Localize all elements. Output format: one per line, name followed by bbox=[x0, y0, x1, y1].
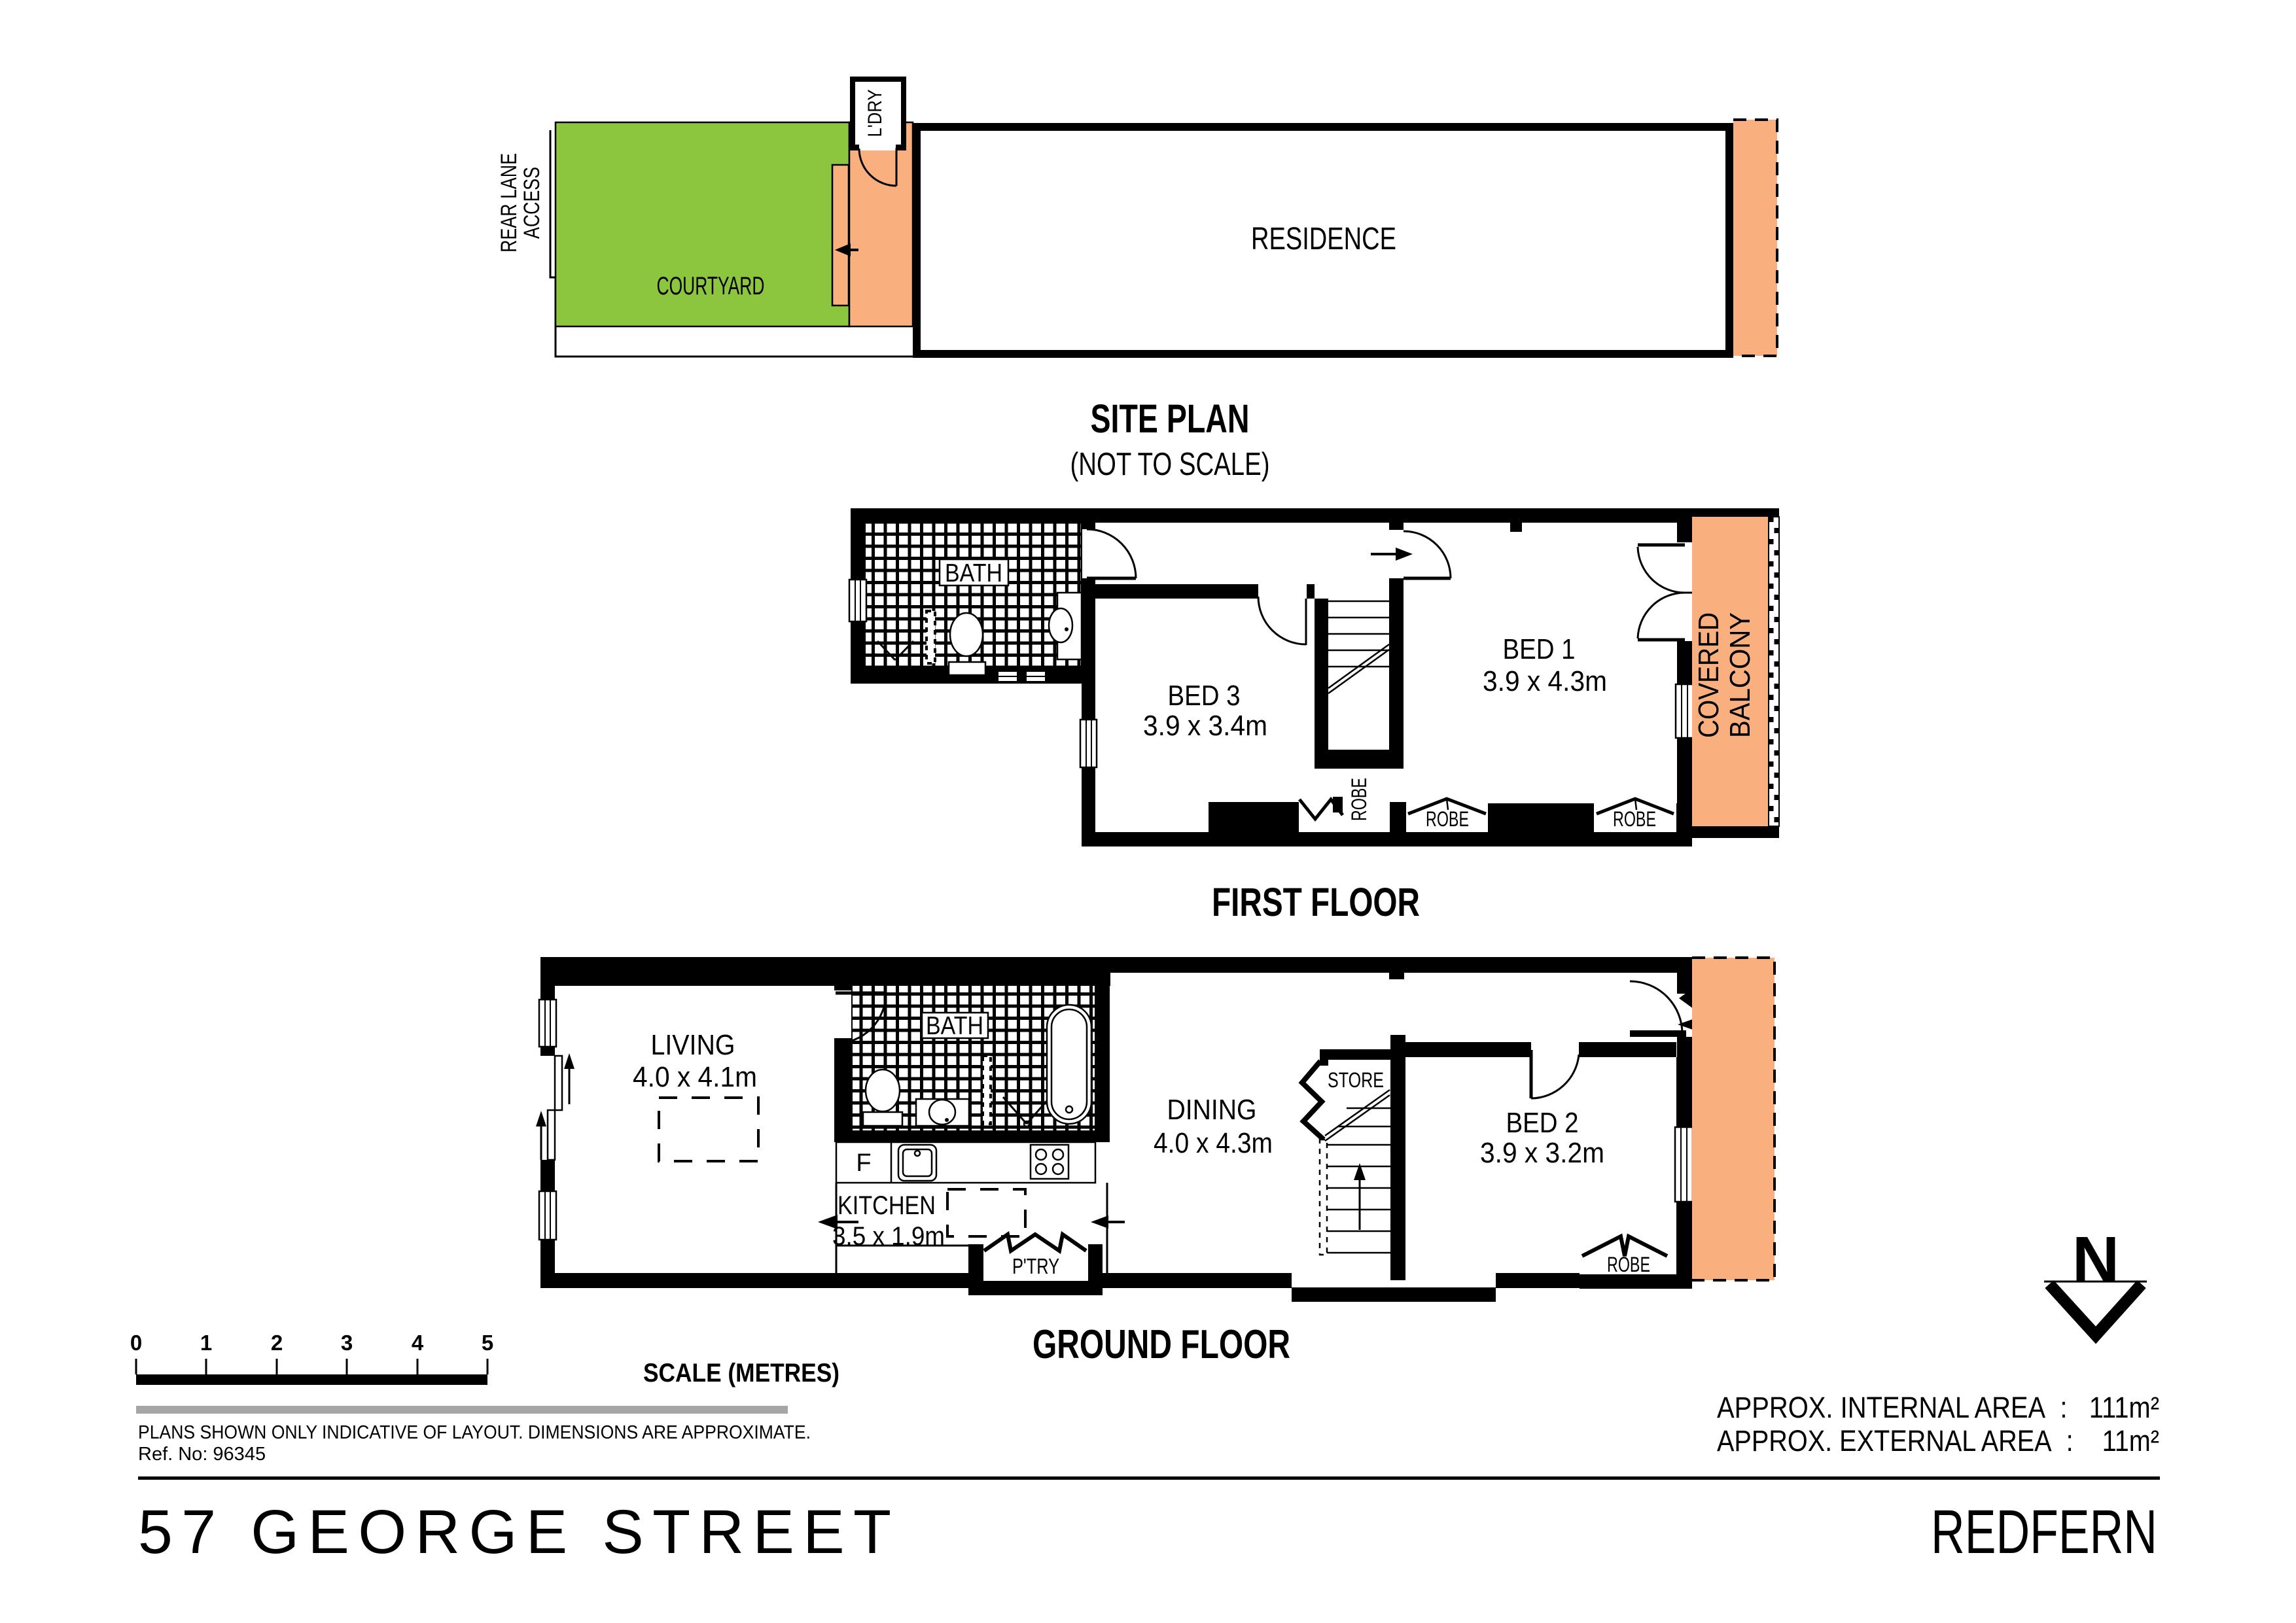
svg-text:P'TRY: P'TRY bbox=[1012, 1254, 1059, 1278]
svg-text:COVERED: COVERED bbox=[1693, 612, 1725, 738]
svg-text:ACCESS: ACCESS bbox=[520, 167, 544, 239]
svg-text:4.0 x 4.3m: 4.0 x 4.3m bbox=[1154, 1127, 1273, 1159]
svg-text:3.9 x 3.4m: 3.9 x 3.4m bbox=[1143, 710, 1267, 742]
svg-text:(NOT TO SCALE): (NOT TO SCALE) bbox=[1070, 447, 1270, 482]
svg-text:BALCONY: BALCONY bbox=[1724, 612, 1756, 738]
svg-text:DINING: DINING bbox=[1167, 1094, 1257, 1126]
svg-text:ROBE: ROBE bbox=[1607, 1253, 1650, 1276]
svg-text:3: 3 bbox=[341, 1331, 353, 1355]
svg-text:3.9 x 3.2m: 3.9 x 3.2m bbox=[1480, 1137, 1604, 1169]
svg-text:2: 2 bbox=[271, 1331, 283, 1355]
svg-text:BED 1: BED 1 bbox=[1503, 633, 1576, 665]
svg-text:N: N bbox=[2072, 1223, 2119, 1297]
svg-text:Ref. No: 96345: Ref. No: 96345 bbox=[138, 1444, 266, 1465]
svg-text:3.9 x 4.3m: 3.9 x 4.3m bbox=[1483, 665, 1607, 697]
svg-text:1: 1 bbox=[200, 1331, 212, 1355]
svg-text:5: 5 bbox=[482, 1331, 493, 1355]
svg-text:STORE: STORE bbox=[1328, 1068, 1384, 1092]
svg-text:BATH: BATH bbox=[926, 1012, 983, 1040]
svg-text:SCALE (METRES): SCALE (METRES) bbox=[643, 1359, 839, 1387]
svg-text:ROBE: ROBE bbox=[1613, 807, 1656, 831]
svg-text:APPROX. EXTERNAL AREA : 11: APPROX. EXTERNAL AREA : 11m² bbox=[1717, 1424, 2159, 1457]
svg-text:4.0 x 4.1m: 4.0 x 4.1m bbox=[633, 1061, 757, 1093]
svg-text:BED 3: BED 3 bbox=[1168, 680, 1241, 712]
svg-text:L'DRY: L'DRY bbox=[864, 90, 886, 137]
svg-text:APPROX. INTERNAL AREA : 111: APPROX. INTERNAL AREA : 111m² bbox=[1717, 1391, 2159, 1424]
svg-text:LIVING: LIVING bbox=[651, 1029, 735, 1061]
svg-text:KITCHEN: KITCHEN bbox=[838, 1191, 936, 1220]
svg-text:4: 4 bbox=[412, 1331, 424, 1355]
svg-text:0: 0 bbox=[130, 1331, 142, 1355]
svg-text:57 GEORGE STREET: 57 GEORGE STREET bbox=[138, 1497, 891, 1567]
svg-text:COURTYARD: COURTYARD bbox=[657, 272, 765, 300]
svg-text:GROUND FLOOR: GROUND FLOOR bbox=[1033, 1322, 1290, 1367]
svg-text:BATH: BATH bbox=[945, 559, 1002, 587]
svg-text:REAR LANE: REAR LANE bbox=[497, 153, 521, 253]
svg-text:FIRST FLOOR: FIRST FLOOR bbox=[1212, 880, 1420, 924]
svg-text:REDFERN: REDFERN bbox=[1931, 1497, 2157, 1567]
svg-text:SITE PLAN: SITE PLAN bbox=[1091, 396, 1250, 441]
svg-text:RESIDENCE: RESIDENCE bbox=[1251, 222, 1396, 256]
svg-text:ROBE: ROBE bbox=[1426, 807, 1469, 831]
svg-text:F: F bbox=[856, 1149, 871, 1177]
svg-text:PLANS SHOWN ONLY INDICATIVE OF: PLANS SHOWN ONLY INDICATIVE OF LAYOUT. D… bbox=[138, 1422, 811, 1443]
svg-text:BED 2: BED 2 bbox=[1506, 1107, 1579, 1139]
svg-text:ROBE: ROBE bbox=[1347, 778, 1371, 821]
